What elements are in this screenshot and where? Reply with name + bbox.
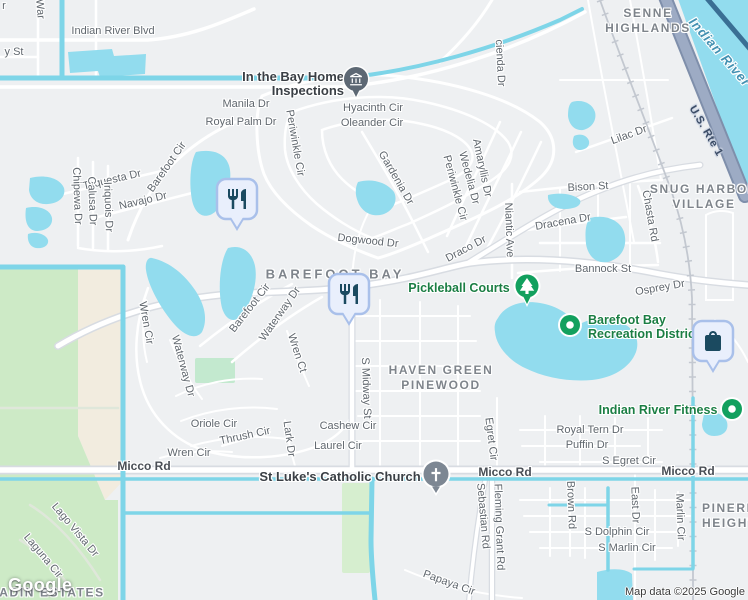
poi-dot-fitness[interactable] [719,396,745,427]
google-logo[interactable]: Google [8,575,72,596]
street-label-marlin-cir: Marlin Cir [673,493,687,540]
poi-label-in-the-bay-home-inspections[interactable]: In the Bay Home Inspections [232,70,344,98]
church-pin[interactable] [419,458,453,509]
map-attribution[interactable]: Map data ©2025 Google [625,586,745,598]
street-label-niantic-ave: Niantic Ave [502,202,516,257]
restaurant-pin-1[interactable] [215,177,259,238]
poi-dot-icon [566,321,574,329]
street-label-royal-tern-dr: Royal Tern Dr [556,424,623,436]
street-label-laurel-cir: Laurel Cir [314,440,362,452]
road-label-micco-rd-w: Micco Rd [117,459,170,473]
street-label-oleander-cir: Oleander Cir [341,117,403,129]
street-label-indian-river-blvd: Indian River Blvd [71,25,154,37]
map-viewport[interactable]: r War y St Indian River Blvd cienda Dr M… [0,0,748,600]
street-label-east-dr: East Dr [628,486,641,523]
park-pin-pickleball[interactable] [511,271,543,318]
street-label-hacienda-dr: cienda Dr [493,39,507,87]
poi-label-indian-river-fitness[interactable]: Indian River Fitness [599,403,718,417]
poi-dot-rec-district[interactable] [557,312,583,343]
shopping-pin[interactable] [691,319,735,380]
street-label-s-dolphin-cir: S Dolphin Cir [585,526,650,538]
street-label-chipewa-dr: Chipewa Dr [70,167,84,225]
street-label-cashew-cir: Cashew Cir [320,420,377,432]
street-label-y-st: y St [5,46,24,58]
poi-label-pickleball-courts[interactable]: Pickleball Courts [408,281,509,295]
park-small-2 [342,483,370,573]
area-label-haven-green-pinewood: HAVEN GREEN PINEWOOD [371,363,511,393]
poi-dot-icon [728,405,736,413]
street-label-bison-st: Bison St [567,180,609,194]
street-label-oriole-cir: Oriole Cir [191,418,237,430]
street-label-iriquois-dr: Iriquois Dr [101,182,115,233]
road-label-micco-rd-c: Micco Rd [478,465,531,479]
area-label-pineridge-heights: PINERIDGE HEIGHTS [702,501,748,531]
area-label-snug-harbor-village: SNUG HARBOR VILLAGE [644,182,748,212]
street-label-s-egret-cir: S Egret Cir [602,455,656,467]
street-label-partial: r [2,0,6,12]
street-label-brown-rd: Brown Rd [564,481,578,530]
street-label-calusa-dr: Calusa Dr [85,176,99,225]
street-label-manila-dr: Manila Dr [222,98,269,110]
street-label-war: War [33,0,47,19]
restaurant-pin-2[interactable] [327,272,371,333]
street-label-puffin-dr: Puffin Dr [566,439,609,451]
poi-label-st-lukes-catholic-church[interactable]: St Luke's Catholic Church [259,470,420,484]
home-inspections-pin[interactable] [340,64,372,111]
street-label-bannock-st: Bannock St [575,263,631,275]
street-label-s-marlin-cir: S Marlin Cir [598,542,655,554]
street-label-royal-palm-dr: Royal Palm Dr [206,116,277,128]
street-label-wren-cir-s: Wren Cir [167,447,210,459]
area-label-senne-highlands: SENNE HIGHLANDS [593,6,703,36]
road-label-micco-rd-e: Micco Rd [661,464,714,478]
